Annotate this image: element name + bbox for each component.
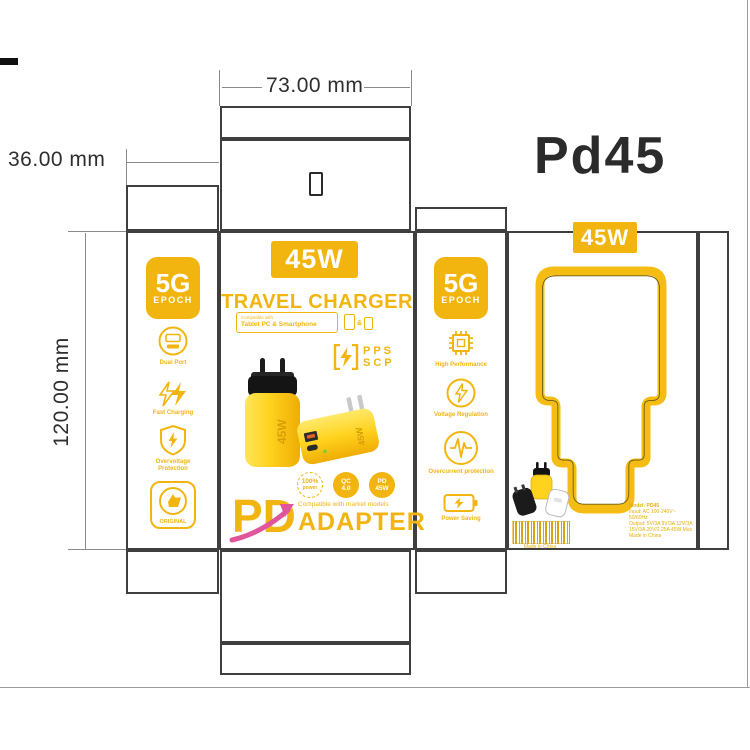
dim-depth-line (126, 162, 219, 163)
front-title: TRAVEL CHARGER (219, 291, 415, 314)
artboard-right-edge (747, 0, 748, 687)
tablet-icon (344, 314, 355, 330)
badge-5g-text: 5G (156, 268, 191, 298)
spec-text-block: Model: PD45 Input: AC 100-240V~ 50/60Hz … (629, 503, 695, 539)
artboard-bottom-edge (0, 687, 750, 688)
front-wattage-badge: 45W (271, 241, 358, 278)
hang-hole (309, 172, 323, 196)
pd-adapter-lockup: PD Compatible with market models ADAPTER (232, 496, 412, 548)
pps-text: PPS (363, 345, 395, 357)
badge-epoch-text: EPOCH (441, 295, 481, 305)
phone-icon (364, 317, 373, 330)
dieline-dust-flap-left (126, 185, 219, 231)
badge-line: PD (377, 478, 386, 485)
badge-5g-epoch-right: 5G EPOCH (434, 257, 488, 319)
compatibility-box: Compatible with Tablet PC & Smartphone (236, 312, 338, 333)
feature-label: Overvoltage Protection (140, 459, 206, 473)
overcurrent-icon (443, 430, 479, 466)
dieline-bottom-flap-left (126, 550, 219, 594)
dim-width-ext-left (219, 70, 220, 106)
dimension-depth-label: 36.00 mm (8, 148, 105, 172)
packaging-dieline-canvas: Pd45 73.00 mm 36.00 mm 120.00 mm 5G EPOC… (0, 0, 750, 750)
voltage-regulation-icon (446, 378, 476, 408)
power-saving-icon (443, 492, 479, 514)
spec-line: Made in China (629, 533, 695, 539)
dieline-bottom-tuck-lip (220, 643, 411, 675)
badge-100-power: 100% power (297, 472, 323, 498)
badge-line: 100% (302, 478, 319, 485)
dim-width-line-left (222, 87, 262, 88)
pps-scp-logo: PPS SCP (333, 344, 395, 370)
dim-depth-ext (126, 149, 127, 185)
dieline-bottom-flap-right (415, 550, 507, 594)
feature-label: Fast Charging (140, 410, 206, 417)
charger-photo-us: 45W (291, 390, 389, 474)
badge-epoch-text: EPOCH (153, 295, 193, 305)
ampersand: & (357, 320, 362, 327)
adapter-text: ADAPTER (298, 509, 426, 536)
dimension-height-label: 120.00 mm (50, 322, 74, 462)
dieline-bottom-flap-center (220, 550, 411, 643)
feature-label: Dual Port (140, 360, 206, 367)
chip-icon (446, 328, 476, 358)
barcode (512, 521, 570, 544)
pd-arrow-icon (228, 498, 306, 546)
feature-label: ORIGINAL (140, 519, 206, 526)
back-wattage-badge: 45W (573, 222, 637, 253)
back-wattage-text: 45W (581, 225, 629, 251)
barcode-caption: Made in China (512, 544, 568, 550)
dim-height-line (85, 233, 86, 550)
badge-line: 4.0 (341, 485, 350, 492)
registration-mark (0, 58, 18, 65)
badge-line: QC (341, 478, 351, 485)
fast-charging-icon (155, 381, 191, 407)
badge-pd-45w: PD 45W (369, 472, 395, 498)
feature-label: Voltage Regulation (428, 412, 494, 419)
bracket-lightning-icon (333, 344, 359, 370)
dual-port-icon (158, 326, 188, 356)
badge-line: 45W (375, 485, 388, 492)
dim-width-line-right (364, 87, 410, 88)
dim-width-ext-right (411, 70, 412, 106)
badge-qc-40: QC 4.0 (333, 472, 359, 498)
dim-height-ext-top (68, 231, 126, 232)
product-code: Pd45 (534, 126, 666, 186)
feature-label: Overcurrent protection (428, 469, 494, 476)
compatibility-value: Tablet PC & Smartphone (241, 320, 333, 329)
svg-text:45W: 45W (275, 419, 289, 444)
badge-5g-epoch-left: 5G EPOCH (146, 257, 200, 319)
feature-label: High Performance (428, 362, 494, 369)
badge-line: power (303, 485, 318, 492)
overvoltage-icon (159, 424, 187, 456)
spec-line: Input: AC 100-240V~ 50/60Hz (629, 509, 695, 521)
front-wattage-text: 45W (285, 244, 344, 275)
dimension-width-label: 73.00 mm (266, 74, 363, 98)
feature-label: Power Saving (428, 516, 494, 523)
dieline-dust-flap-right (415, 207, 507, 231)
mini-chargers-photo (509, 460, 573, 520)
badge-5g-text: 5G (444, 268, 479, 298)
dim-height-ext-bottom (68, 549, 126, 550)
dieline-top-tuck-lip (220, 106, 411, 139)
scp-text: SCP (363, 357, 395, 369)
panel-glue-tab (698, 231, 729, 550)
